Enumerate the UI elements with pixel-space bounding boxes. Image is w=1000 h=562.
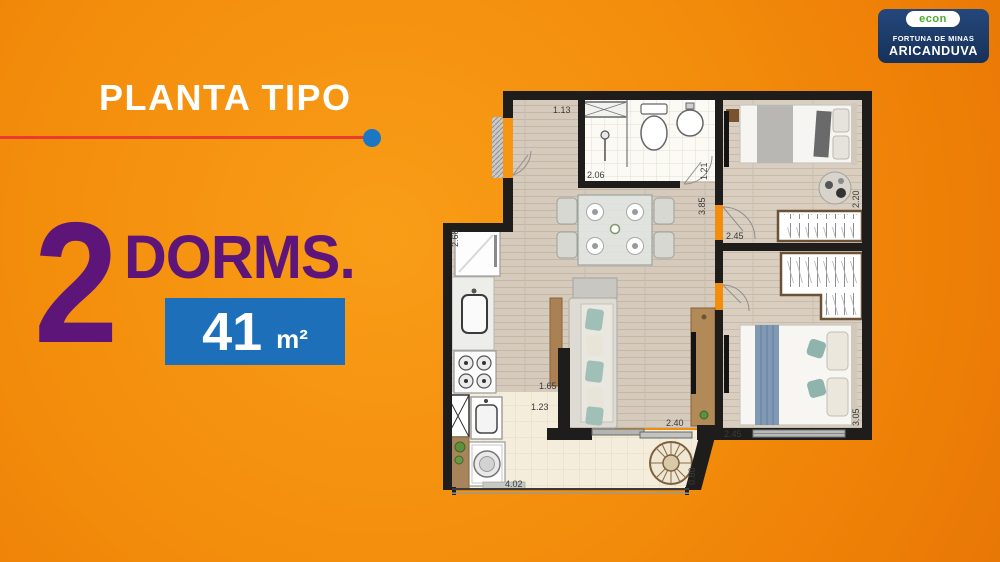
- dimension-label: 1.23: [531, 402, 549, 412]
- dimension-label: 2.68: [450, 229, 460, 247]
- area-badge: 41 m²: [165, 298, 345, 365]
- dimension-label: 0.80: [687, 467, 697, 485]
- laundry-sink: [471, 397, 502, 439]
- tv-console: [691, 308, 715, 426]
- divider-line: [0, 136, 364, 139]
- dimension-label: 2.45: [724, 429, 742, 439]
- area-unit: m²: [276, 326, 308, 352]
- wardrobe-bedroom2: [778, 211, 862, 241]
- brand-name: econ: [919, 13, 947, 25]
- brand-line2: ARICANDUVA: [878, 44, 989, 58]
- brand-line1: FORTUNA DE MINAS: [878, 34, 989, 43]
- sofa: [569, 278, 617, 428]
- fridge: [455, 228, 500, 276]
- entry-landing: [492, 117, 503, 178]
- brand-logo: econ FORTUNA DE MINAS ARICANDUVA: [878, 9, 989, 63]
- double-bed: [740, 323, 857, 427]
- dorms-label: DORMS.: [124, 222, 355, 292]
- window-bedroom1: [753, 430, 845, 437]
- poster: { "header": { "title": "PLANTA TIPO" }, …: [0, 0, 1000, 562]
- dimension-label: 1.65: [539, 381, 557, 391]
- dimension-label: 3.05: [851, 408, 861, 426]
- washing-machine: [469, 442, 505, 486]
- dimension-label: 1.21: [699, 162, 709, 180]
- stove: [454, 351, 496, 393]
- bathroom-niche: [581, 102, 627, 117]
- laundry-shelf: [451, 437, 469, 489]
- single-bed: [740, 103, 857, 165]
- dimension-label: 4.02: [505, 479, 523, 489]
- dorms-count: 2: [34, 206, 118, 361]
- kitchen-sink: [452, 277, 494, 350]
- dimension-label: 3.85: [697, 197, 707, 215]
- balcony-chair: [650, 442, 692, 484]
- brand-pill: econ: [906, 11, 960, 27]
- floor-plan: 1.13 2.06 1.21 3.85 2.20 2.45 2.68 1.65 …: [435, 85, 875, 500]
- dimension-label: 2.40: [666, 418, 684, 428]
- dimension-label: 1.13: [553, 105, 571, 115]
- toilet: [641, 104, 667, 150]
- tv-icon-bedroom2: [724, 111, 729, 167]
- tv-icon: [691, 332, 696, 394]
- balcony-railing: [452, 488, 689, 494]
- tv-icon-bedroom1: [724, 335, 729, 393]
- dimension-label: 2.06: [587, 170, 605, 180]
- side-table: [819, 172, 851, 204]
- dimension-label: 2.20: [851, 190, 861, 208]
- area-value: 41: [202, 305, 262, 359]
- divider-dot: [363, 129, 381, 147]
- page-title: PLANTA TIPO: [99, 77, 352, 119]
- dimension-label: 2.45: [726, 231, 744, 241]
